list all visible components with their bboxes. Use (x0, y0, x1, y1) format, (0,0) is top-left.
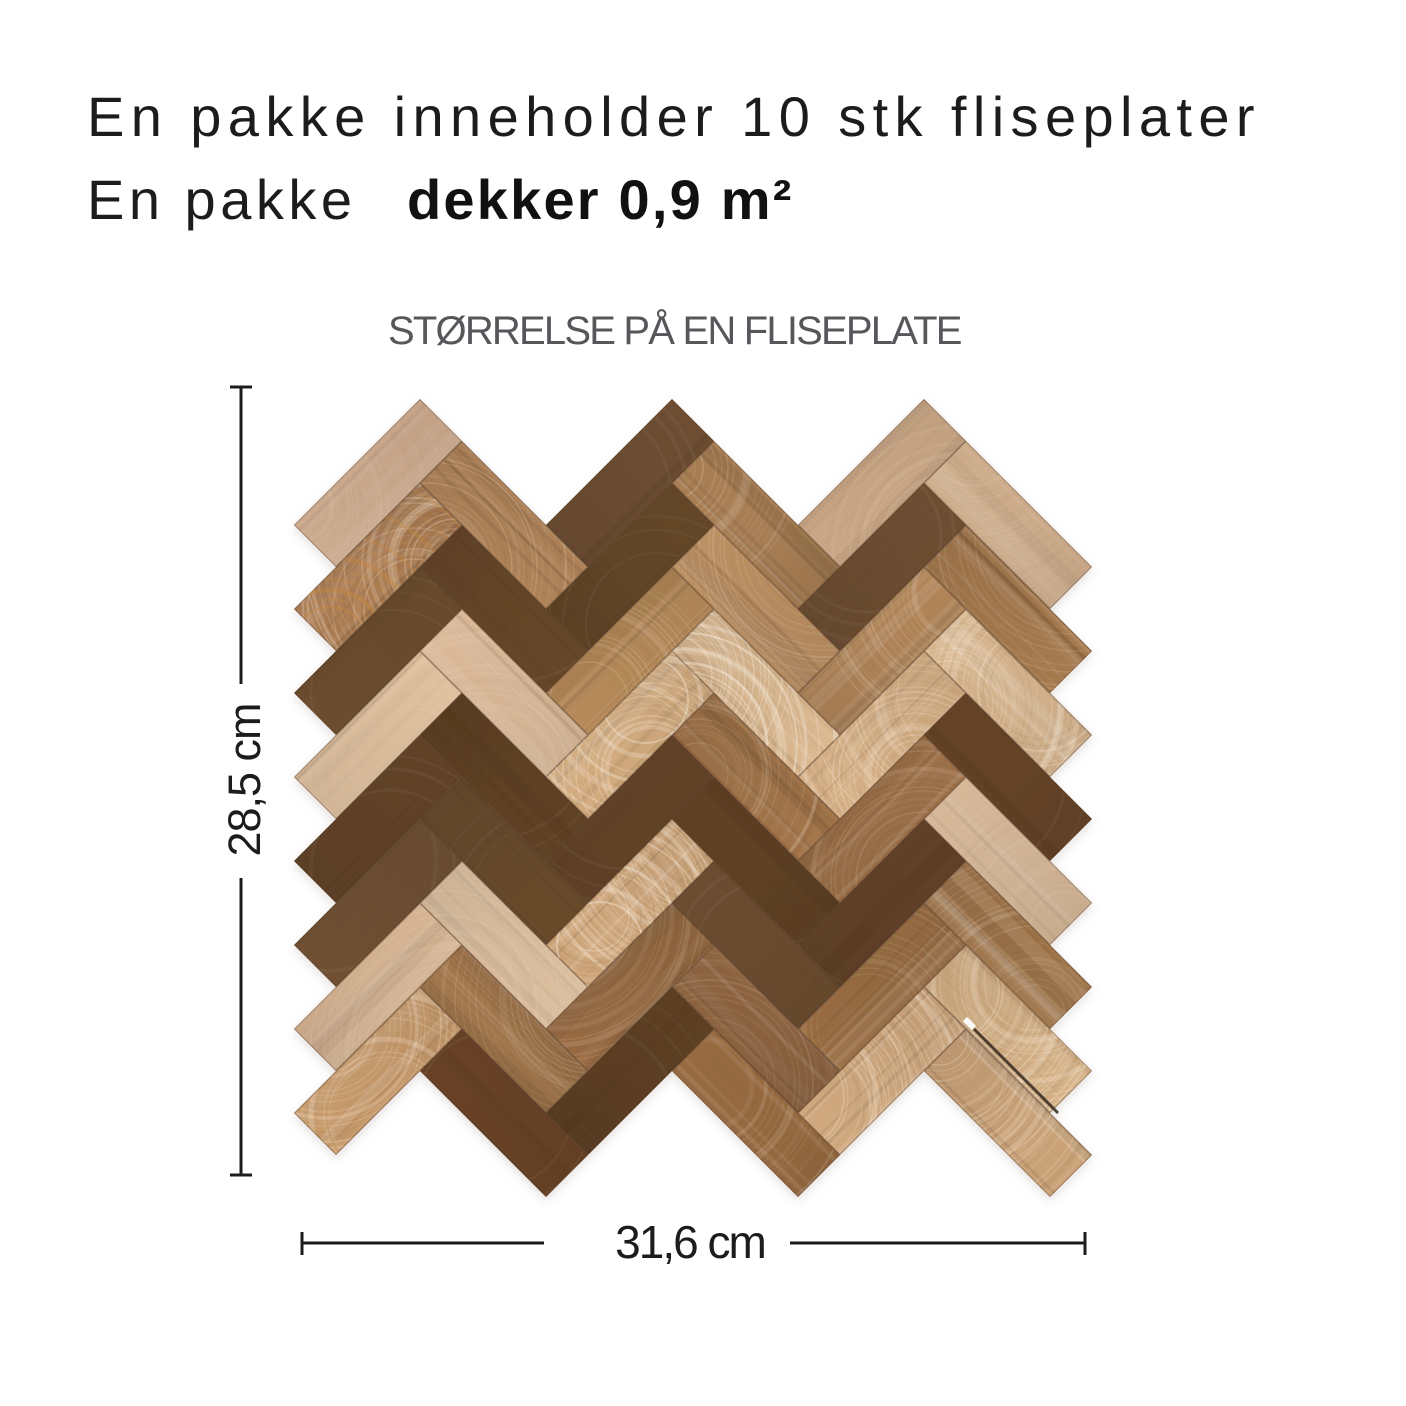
svg-text:28,5 cm: 28,5 cm (219, 703, 270, 856)
svg-text:31,6 cm: 31,6 cm (615, 1216, 765, 1268)
